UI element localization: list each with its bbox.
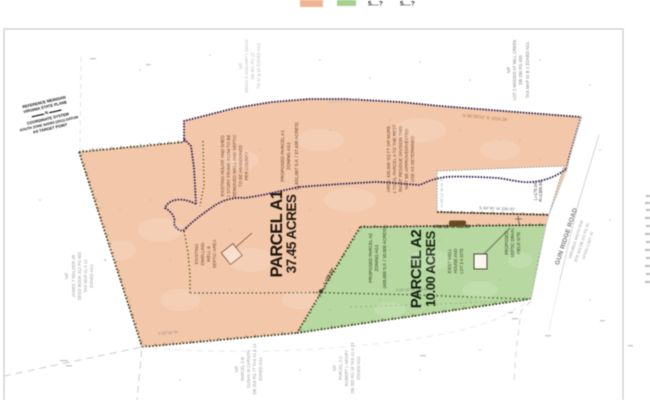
svg-text:SUSAN M CARSON: SUSAN M CARSON bbox=[246, 350, 251, 388]
svg-text:DB 290 PG 455: DB 290 PG 455 bbox=[518, 55, 523, 85]
svg-text:(435,600 S.F. / 10.000 ACRES): (435,600 S.F. / 10.000 ACRES) bbox=[382, 227, 387, 288]
svg-text:DWELLING: DWELLING bbox=[200, 242, 205, 266]
svg-text:ROBERT L HENRY: ROBERT L HENRY bbox=[344, 350, 349, 387]
svg-text:ZONED AG1: ZONED AG1 bbox=[89, 263, 94, 288]
svg-text:ZONING AG1: ZONING AG1 bbox=[374, 244, 379, 271]
svg-text:PROPOSED: PROPOSED bbox=[504, 231, 509, 255]
svg-text:N 05°14' W 41.11': N 05°14' W 41.11' bbox=[440, 177, 444, 207]
svg-text:N/F: N/F bbox=[506, 66, 511, 73]
svg-text:DB 355 PG 18 TAX 41 A 15: DB 355 PG 18 TAX 41 A 15 bbox=[350, 342, 355, 394]
svg-text:USE AS DETERMINED: USE AS DETERMINED bbox=[410, 136, 415, 182]
svg-text:5....?: 5....? bbox=[368, 1, 383, 8]
svg-text:ZONED AG1: ZONED AG1 bbox=[356, 355, 361, 380]
svg-text:TAX MAP 41 A 12: TAX MAP 41 A 12 bbox=[83, 259, 88, 293]
svg-text:PARCEL 2-B: PARCEL 2-B bbox=[240, 357, 245, 381]
svg-text:N/F: N/F bbox=[234, 365, 239, 372]
svg-text:AREA: 435,600 SQ FT OR MORE: AREA: 435,600 SQ FT OR MORE bbox=[386, 126, 391, 193]
svg-text:TM 41 A 10 ZONED AG1: TM 41 A 10 ZONED AG1 bbox=[256, 42, 261, 89]
svg-text:N/F: N/F bbox=[238, 62, 243, 69]
svg-text:LOT 2 WOODS AT MILL CREEK: LOT 2 WOODS AT MILL CREEK bbox=[512, 39, 517, 100]
svg-text:DB 401 PG 12: DB 401 PG 12 bbox=[250, 52, 255, 80]
svg-text:JAMES T WALKER JR: JAMES T WALKER JR bbox=[71, 255, 76, 298]
svg-text:HOUSE AND: HOUSE AND bbox=[453, 249, 458, 274]
svg-text:5....?: 5....? bbox=[400, 1, 415, 8]
svg-text:PARCEL 2-C: PARCEL 2-C bbox=[338, 356, 343, 380]
svg-text:DEED BOOK 412 PG 665: DEED BOOK 412 PG 665 bbox=[77, 251, 82, 300]
svg-text:EXISTING: EXISTING bbox=[194, 243, 199, 264]
svg-text:TAX MAP 41 B 2 ZONED AG1: TAX MAP 41 B 2 ZONED AG1 bbox=[525, 41, 530, 98]
svg-text:S 85°30' W 742.50': S 85°30' W 742.50' bbox=[396, 288, 429, 293]
svg-text:LOT 3 A SITE: LOT 3 A SITE bbox=[459, 248, 464, 274]
svg-text:R=1389.69': R=1389.69' bbox=[538, 180, 543, 202]
svg-text:PROPOSED PARCEL A2: PROPOSED PARCEL A2 bbox=[368, 233, 373, 283]
svg-text:PROPOSED PARCEL A1: PROPOSED PARCEL A1 bbox=[280, 130, 285, 182]
svg-text:FIELD SITE: FIELD SITE bbox=[516, 232, 521, 255]
svg-text:N/F: N/F bbox=[64, 272, 69, 279]
svg-text:ZONING AG1: ZONING AG1 bbox=[286, 142, 291, 171]
svg-text:BRIAN K AND AMY L DAVIS: BRIAN K AND AMY L DAVIS bbox=[244, 39, 249, 92]
svg-text:WELL &: WELL & bbox=[206, 246, 211, 262]
svg-text:37.45 ACRES: 37.45 ACRES bbox=[284, 194, 299, 273]
svg-text:EXISTING HOUSE AND SHED: EXISTING HOUSE AND SHED bbox=[220, 136, 225, 197]
svg-text:ZONED AG1: ZONED AG1 bbox=[258, 356, 263, 381]
svg-text:SEPTIC AREA: SEPTIC AREA bbox=[212, 240, 217, 269]
svg-text:DB 318 PG 77 TAX 41 A 14: DB 318 PG 77 TAX 41 A 14 bbox=[252, 343, 257, 395]
svg-text:N/F: N/F bbox=[332, 364, 337, 371]
svg-text:(1,631,087 S.F. / 37.438 ACRES: (1,631,087 S.F. / 37.438 ACRES) bbox=[294, 122, 299, 190]
